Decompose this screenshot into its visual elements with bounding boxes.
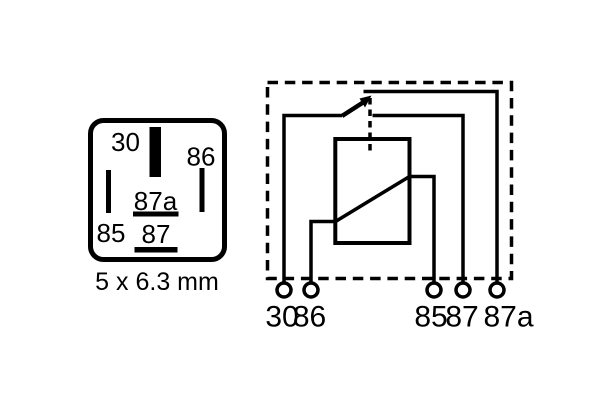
wire-terminal-86 [311, 222, 337, 284]
pin-30-blade [150, 127, 162, 177]
pin-85-blade [106, 170, 111, 213]
wire-terminal-30 [284, 116, 342, 284]
pinout-label-85: 85 [97, 218, 126, 248]
terminal-label-86: 86 [293, 301, 326, 334]
pinout-label-87: 87 [142, 219, 171, 249]
pinout-label-87a: 87a [134, 186, 178, 216]
relay-diagram-figure: 30 86 85 87a 87 5 x 6.3 mm [0, 0, 600, 400]
terminal-87 [456, 283, 470, 297]
pinout-label-86: 86 [187, 142, 216, 172]
terminal-87a [490, 283, 504, 297]
terminal-30 [277, 283, 291, 297]
wire-terminal-85 [409, 177, 435, 284]
pinout-label-30: 30 [111, 127, 140, 157]
wire-terminal-87a [364, 92, 498, 284]
pinout-caption: 5 x 6.3 mm [95, 268, 219, 296]
terminal-label-87a: 87a [483, 301, 533, 334]
relay-circuit-schematic: 30 86 85 87 87a [265, 83, 534, 334]
relay-pinout-diagram: 30 86 85 87a 87 5 x 6.3 mm [91, 121, 225, 297]
coil-symbol [335, 139, 409, 243]
relay-housing-outline [268, 83, 512, 279]
switch-arm [342, 103, 363, 117]
diagram-canvas: 30 86 85 87a 87 5 x 6.3 mm [0, 0, 600, 400]
terminal-label-85: 85 [414, 301, 447, 334]
terminal-86 [304, 283, 318, 297]
coil-winding-diagonal [336, 177, 410, 222]
terminal-label-87: 87 [445, 301, 478, 334]
pin-86-blade [200, 168, 205, 212]
terminal-85 [427, 283, 441, 297]
